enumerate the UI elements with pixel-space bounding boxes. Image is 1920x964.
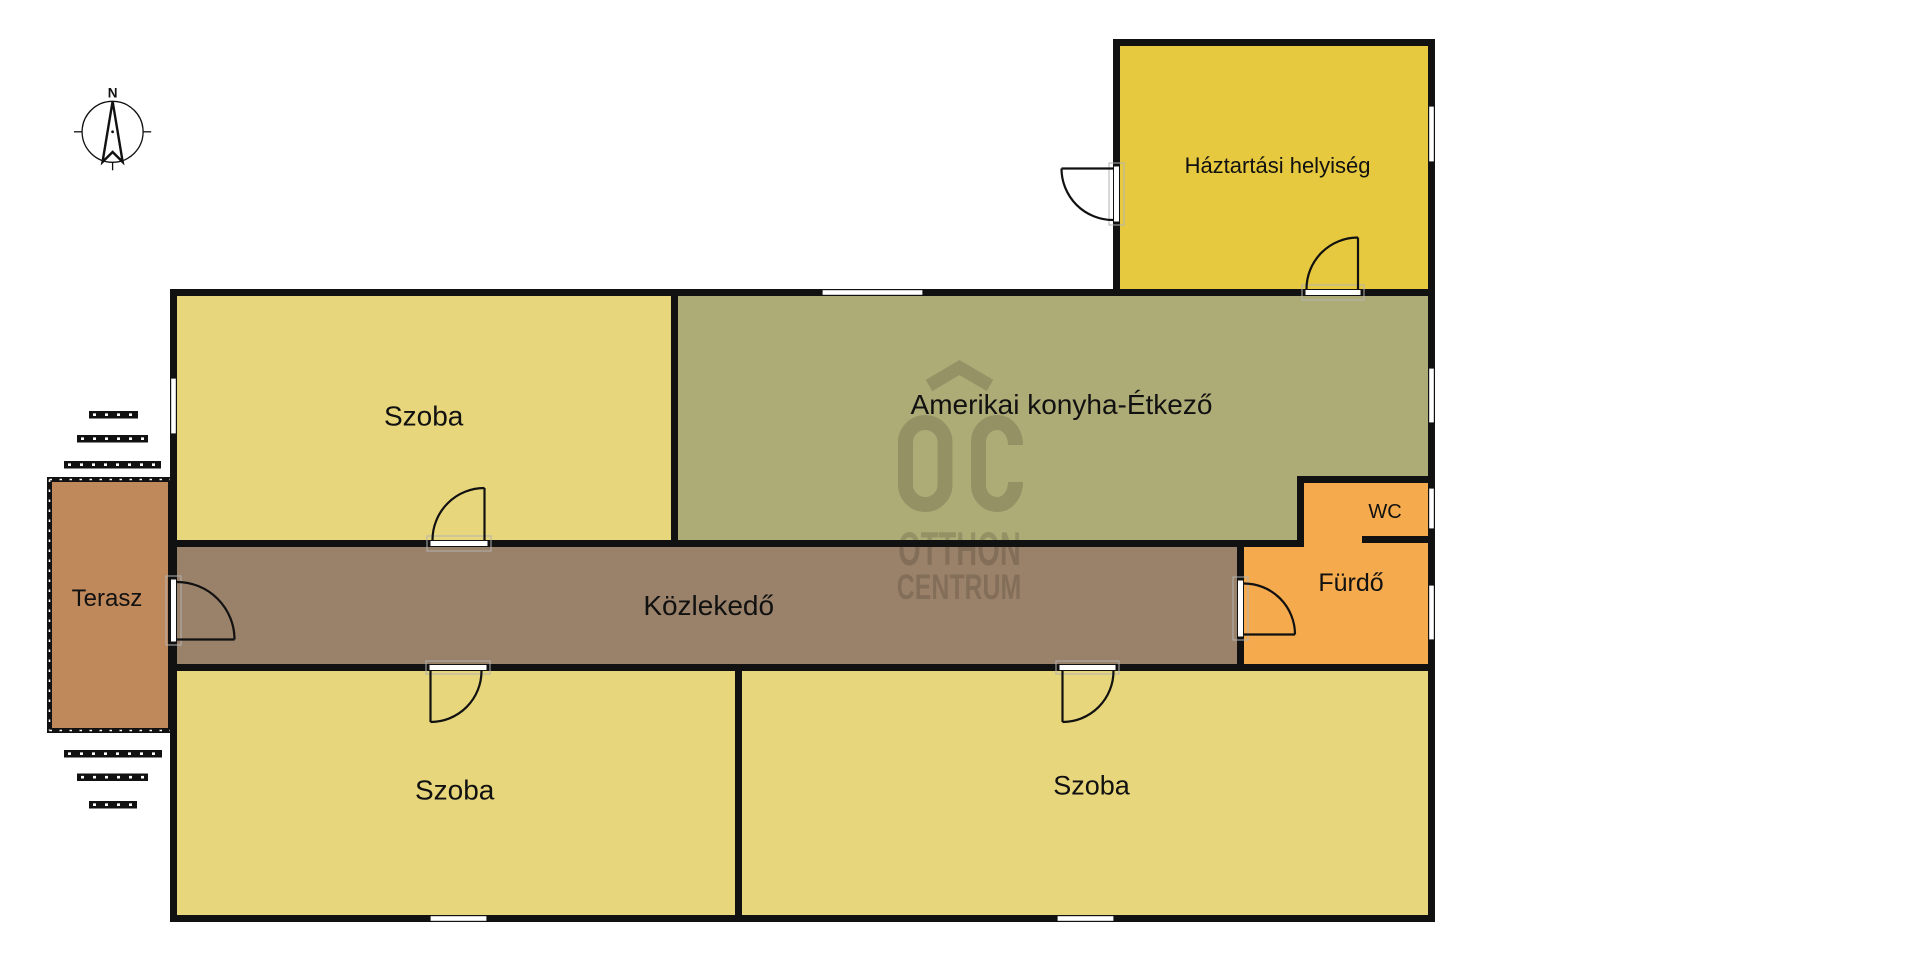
svg-text:Közlekedő: Közlekedő [643, 590, 774, 621]
svg-text:CENTRUM: CENTRUM [897, 569, 1021, 607]
svg-text:Amerikai konyha-Étkező: Amerikai konyha-Étkező [911, 389, 1213, 420]
svg-text:Szoba: Szoba [415, 774, 495, 805]
svg-text:Szoba: Szoba [384, 401, 464, 432]
svg-text:Szoba: Szoba [1053, 771, 1131, 801]
svg-text:N: N [108, 86, 118, 101]
svg-text:Háztartási helyiség: Háztartási helyiség [1185, 153, 1371, 178]
svg-text:Terasz: Terasz [72, 585, 143, 612]
svg-text:OTTHON: OTTHON [898, 524, 1021, 576]
svg-text:WC: WC [1368, 501, 1401, 523]
svg-text:Fürdő: Fürdő [1318, 569, 1383, 597]
